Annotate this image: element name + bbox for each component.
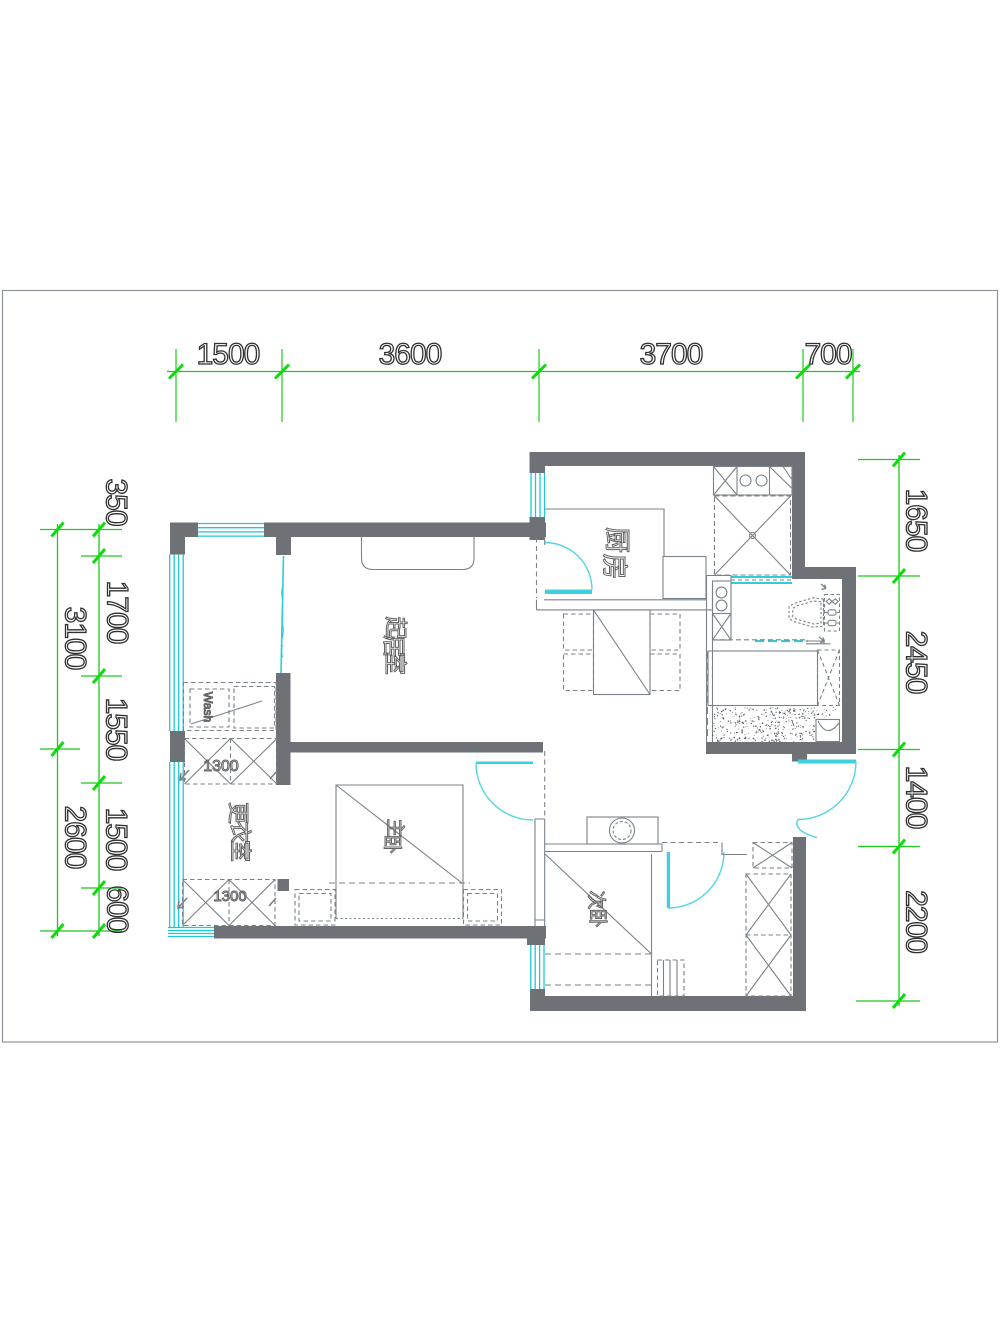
svg-text:2600: 2600 xyxy=(59,806,92,869)
svg-text:700: 700 xyxy=(804,338,851,371)
svg-text:室: 室 xyxy=(382,652,408,675)
svg-text:2450: 2450 xyxy=(900,631,933,694)
svg-text:房: 房 xyxy=(599,553,629,579)
svg-text:卧: 卧 xyxy=(381,835,403,854)
svg-text:Wash: Wash xyxy=(201,692,215,722)
svg-text:室: 室 xyxy=(227,840,252,862)
svg-text:卧: 卧 xyxy=(586,908,608,927)
svg-text:1500: 1500 xyxy=(100,808,133,871)
svg-text:3700: 3700 xyxy=(640,338,703,371)
svg-text:1400: 1400 xyxy=(900,766,933,829)
svg-text:1550: 1550 xyxy=(100,698,133,761)
svg-text:3600: 3600 xyxy=(379,338,442,371)
svg-text:次: 次 xyxy=(585,890,607,909)
svg-text:1500: 1500 xyxy=(197,338,260,371)
svg-text:1650: 1650 xyxy=(900,489,933,552)
svg-text:1700: 1700 xyxy=(101,581,134,644)
svg-text:350: 350 xyxy=(100,478,133,525)
svg-text:1300: 1300 xyxy=(213,888,246,905)
svg-text:厨: 厨 xyxy=(602,527,632,553)
svg-text:2200: 2200 xyxy=(900,890,933,953)
svg-text:3100: 3100 xyxy=(59,607,92,670)
svg-text:1300: 1300 xyxy=(203,758,239,775)
svg-text:600: 600 xyxy=(101,885,134,932)
